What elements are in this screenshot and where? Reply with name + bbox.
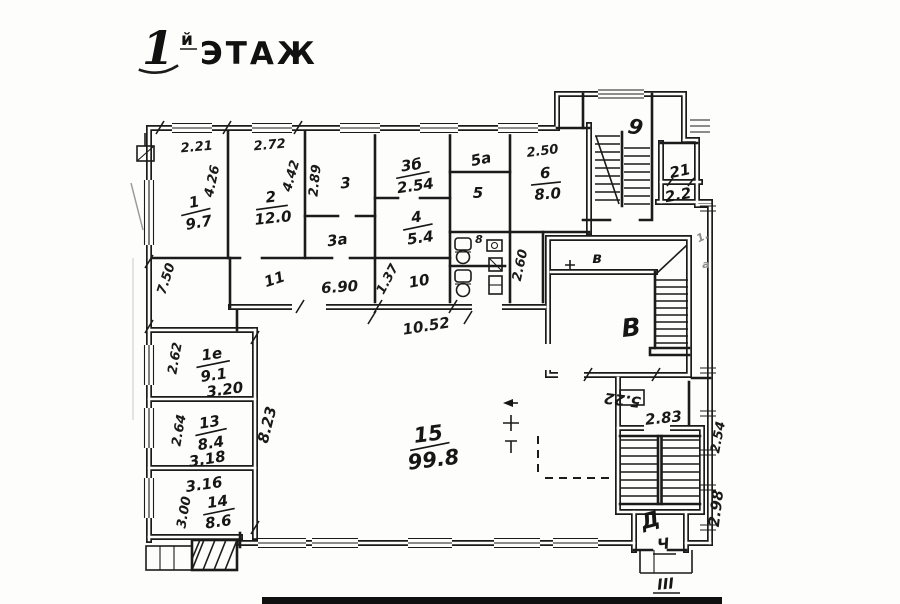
scan-artifacts [131, 183, 143, 420]
dim-room14-side: 3.00 [174, 495, 194, 529]
room-label-2: 2 12.0 [252, 186, 293, 229]
dim-shaft-side: 2.60 [510, 248, 531, 282]
hall-dashed-outline [538, 436, 610, 478]
room-label-15: 15 99.8 [403, 419, 461, 475]
room-label-v-small: в [592, 249, 602, 267]
room-label-8: 8 [475, 233, 483, 246]
dim-corridor-width: 6.90 [321, 277, 359, 298]
dim-room3-side: 2.89 [306, 164, 324, 197]
scan-bottom-bar [262, 597, 722, 604]
svg-text:4: 4 [409, 207, 423, 226]
floor-suffix: й [181, 30, 193, 50]
dim-corridor-length: 10.52 [401, 313, 451, 338]
svg-text:1е: 1е [200, 344, 223, 365]
room-label-11: 11 [262, 267, 287, 291]
dim-room1-side: 4.26 [202, 164, 224, 199]
svg-text:12.0: 12.0 [254, 207, 293, 229]
entrance-label: III [653, 574, 680, 593]
svg-text:15: 15 [412, 420, 444, 447]
dim-room6-top: 2.50 [526, 142, 560, 161]
hall-survey-symbols [503, 260, 575, 453]
page-title: 1 й ЭТАЖ [140, 21, 318, 75]
dim-room1e-side: 2.62 [165, 341, 185, 375]
dim-staird-top: 2.83 [644, 407, 683, 429]
staircase-v-icon [650, 245, 689, 355]
room-label-1e: 1е 9.1 3.20 [194, 342, 245, 403]
room-label-5a: 5а [469, 148, 493, 170]
svg-text:3б: 3б [400, 155, 423, 176]
dim-roomv-bottom: 5.22 [603, 389, 642, 411]
room-label-10: 10 [407, 270, 431, 291]
dim-room1-top: 2.21 [180, 139, 213, 157]
svg-text:5.4: 5.4 [406, 227, 435, 249]
door-openings-layer [292, 301, 670, 434]
scan-mark-mid: а [702, 258, 709, 271]
svg-text:1: 1 [187, 192, 200, 212]
dim-corridor-left: 7.50 [155, 261, 179, 296]
floorplan-scan-page: 1 й ЭТАЖ 1 9.7 2 12.0 3 3а 3б 2.54 4 5.4… [0, 0, 900, 604]
staircase-9-icon [595, 132, 650, 206]
svg-text:Ч: Ч [656, 534, 671, 554]
svg-text:13: 13 [198, 412, 221, 433]
staircase-d-icon [620, 436, 700, 504]
room-label-5: 5 [473, 184, 483, 202]
dim-right-lower: 2.98 [705, 489, 727, 528]
svg-text:8.0: 8.0 [534, 184, 562, 204]
room-label-3b: 3б 2.54 [393, 153, 435, 197]
dim-room13-side: 2.64 [169, 413, 189, 447]
room-label-4: 4 5.4 [400, 206, 435, 249]
svg-text:III: III [656, 574, 675, 593]
dim-room10-side: 1.37 [374, 261, 403, 297]
svg-text:6: 6 [539, 164, 551, 183]
svg-text:2.54: 2.54 [396, 174, 435, 197]
dim-room2-side: 4.42 [280, 159, 304, 195]
room-label-13: 13 8.4 3.18 [182, 411, 232, 471]
svg-text:99.8: 99.8 [406, 445, 460, 475]
floor-word: ЭТАЖ [200, 36, 318, 72]
room-label-6: 6 8.0 [530, 163, 563, 204]
room-label-9: 9 [626, 114, 645, 141]
room-label-v-big: В [620, 312, 642, 343]
dim-room2-top: 2.72 [253, 137, 286, 155]
room-label-3: 3 [340, 174, 352, 193]
svg-text:14: 14 [206, 491, 229, 512]
floorplan-canvas: 1 й ЭТАЖ 1 9.7 2 12.0 3 3а 3б 2.54 4 5.4… [0, 0, 900, 604]
entry-steps-left [146, 546, 192, 570]
room-label-3a: 3а [326, 230, 349, 251]
floor-number: 1 [142, 21, 174, 75]
hatched-wall-section [192, 540, 237, 570]
room-label-21: 21 [668, 160, 692, 182]
svg-text:8.6: 8.6 [204, 511, 233, 533]
svg-text:9.7: 9.7 [184, 211, 214, 233]
svg-text:2: 2 [265, 188, 277, 207]
